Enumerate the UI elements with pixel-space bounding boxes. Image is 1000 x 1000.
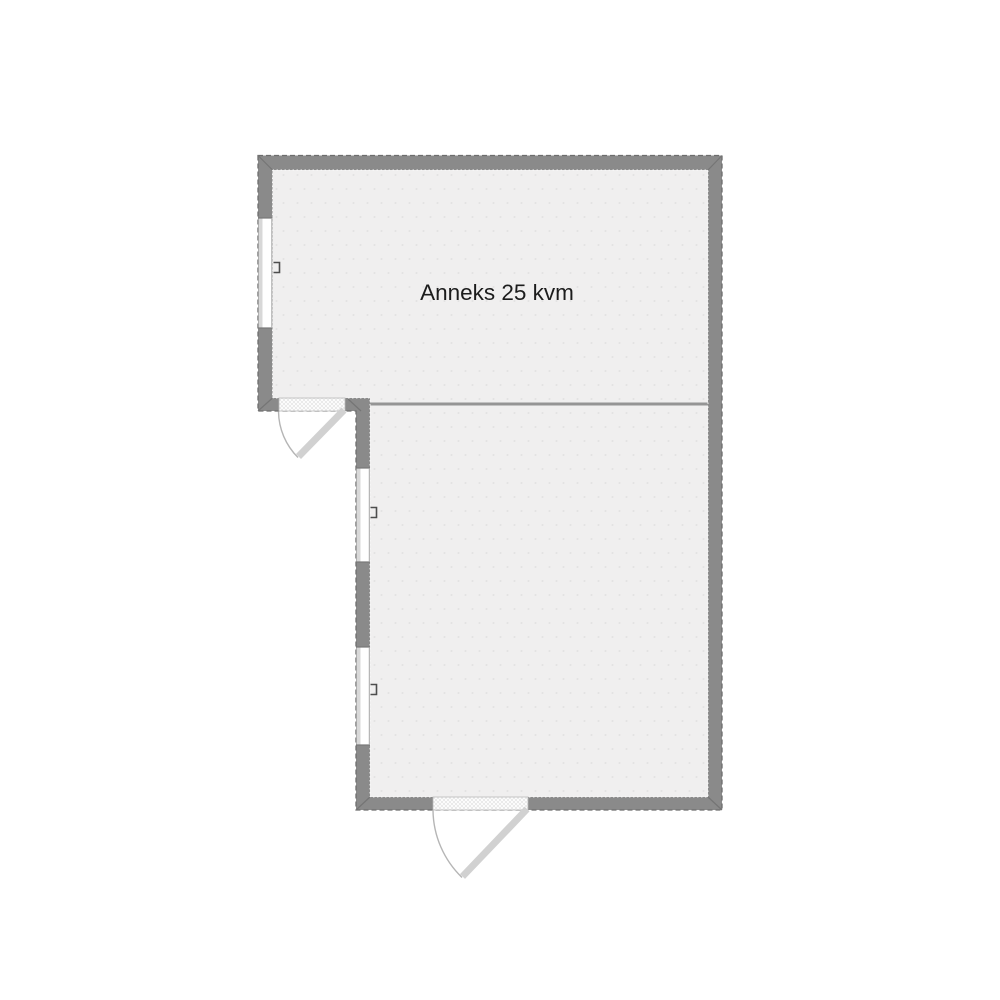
door-threshold [279, 398, 345, 411]
window-sill [259, 218, 263, 328]
floorplan-svg: Anneks 25 kvm [0, 0, 1000, 1000]
floorplan-canvas: Anneks 25 kvm [0, 0, 1000, 1000]
window-sill [357, 468, 361, 562]
door-threshold [433, 797, 528, 810]
room-divider [370, 403, 708, 406]
room-label-anneks: Anneks 25 kvm [420, 280, 574, 305]
window-sill [357, 647, 361, 745]
